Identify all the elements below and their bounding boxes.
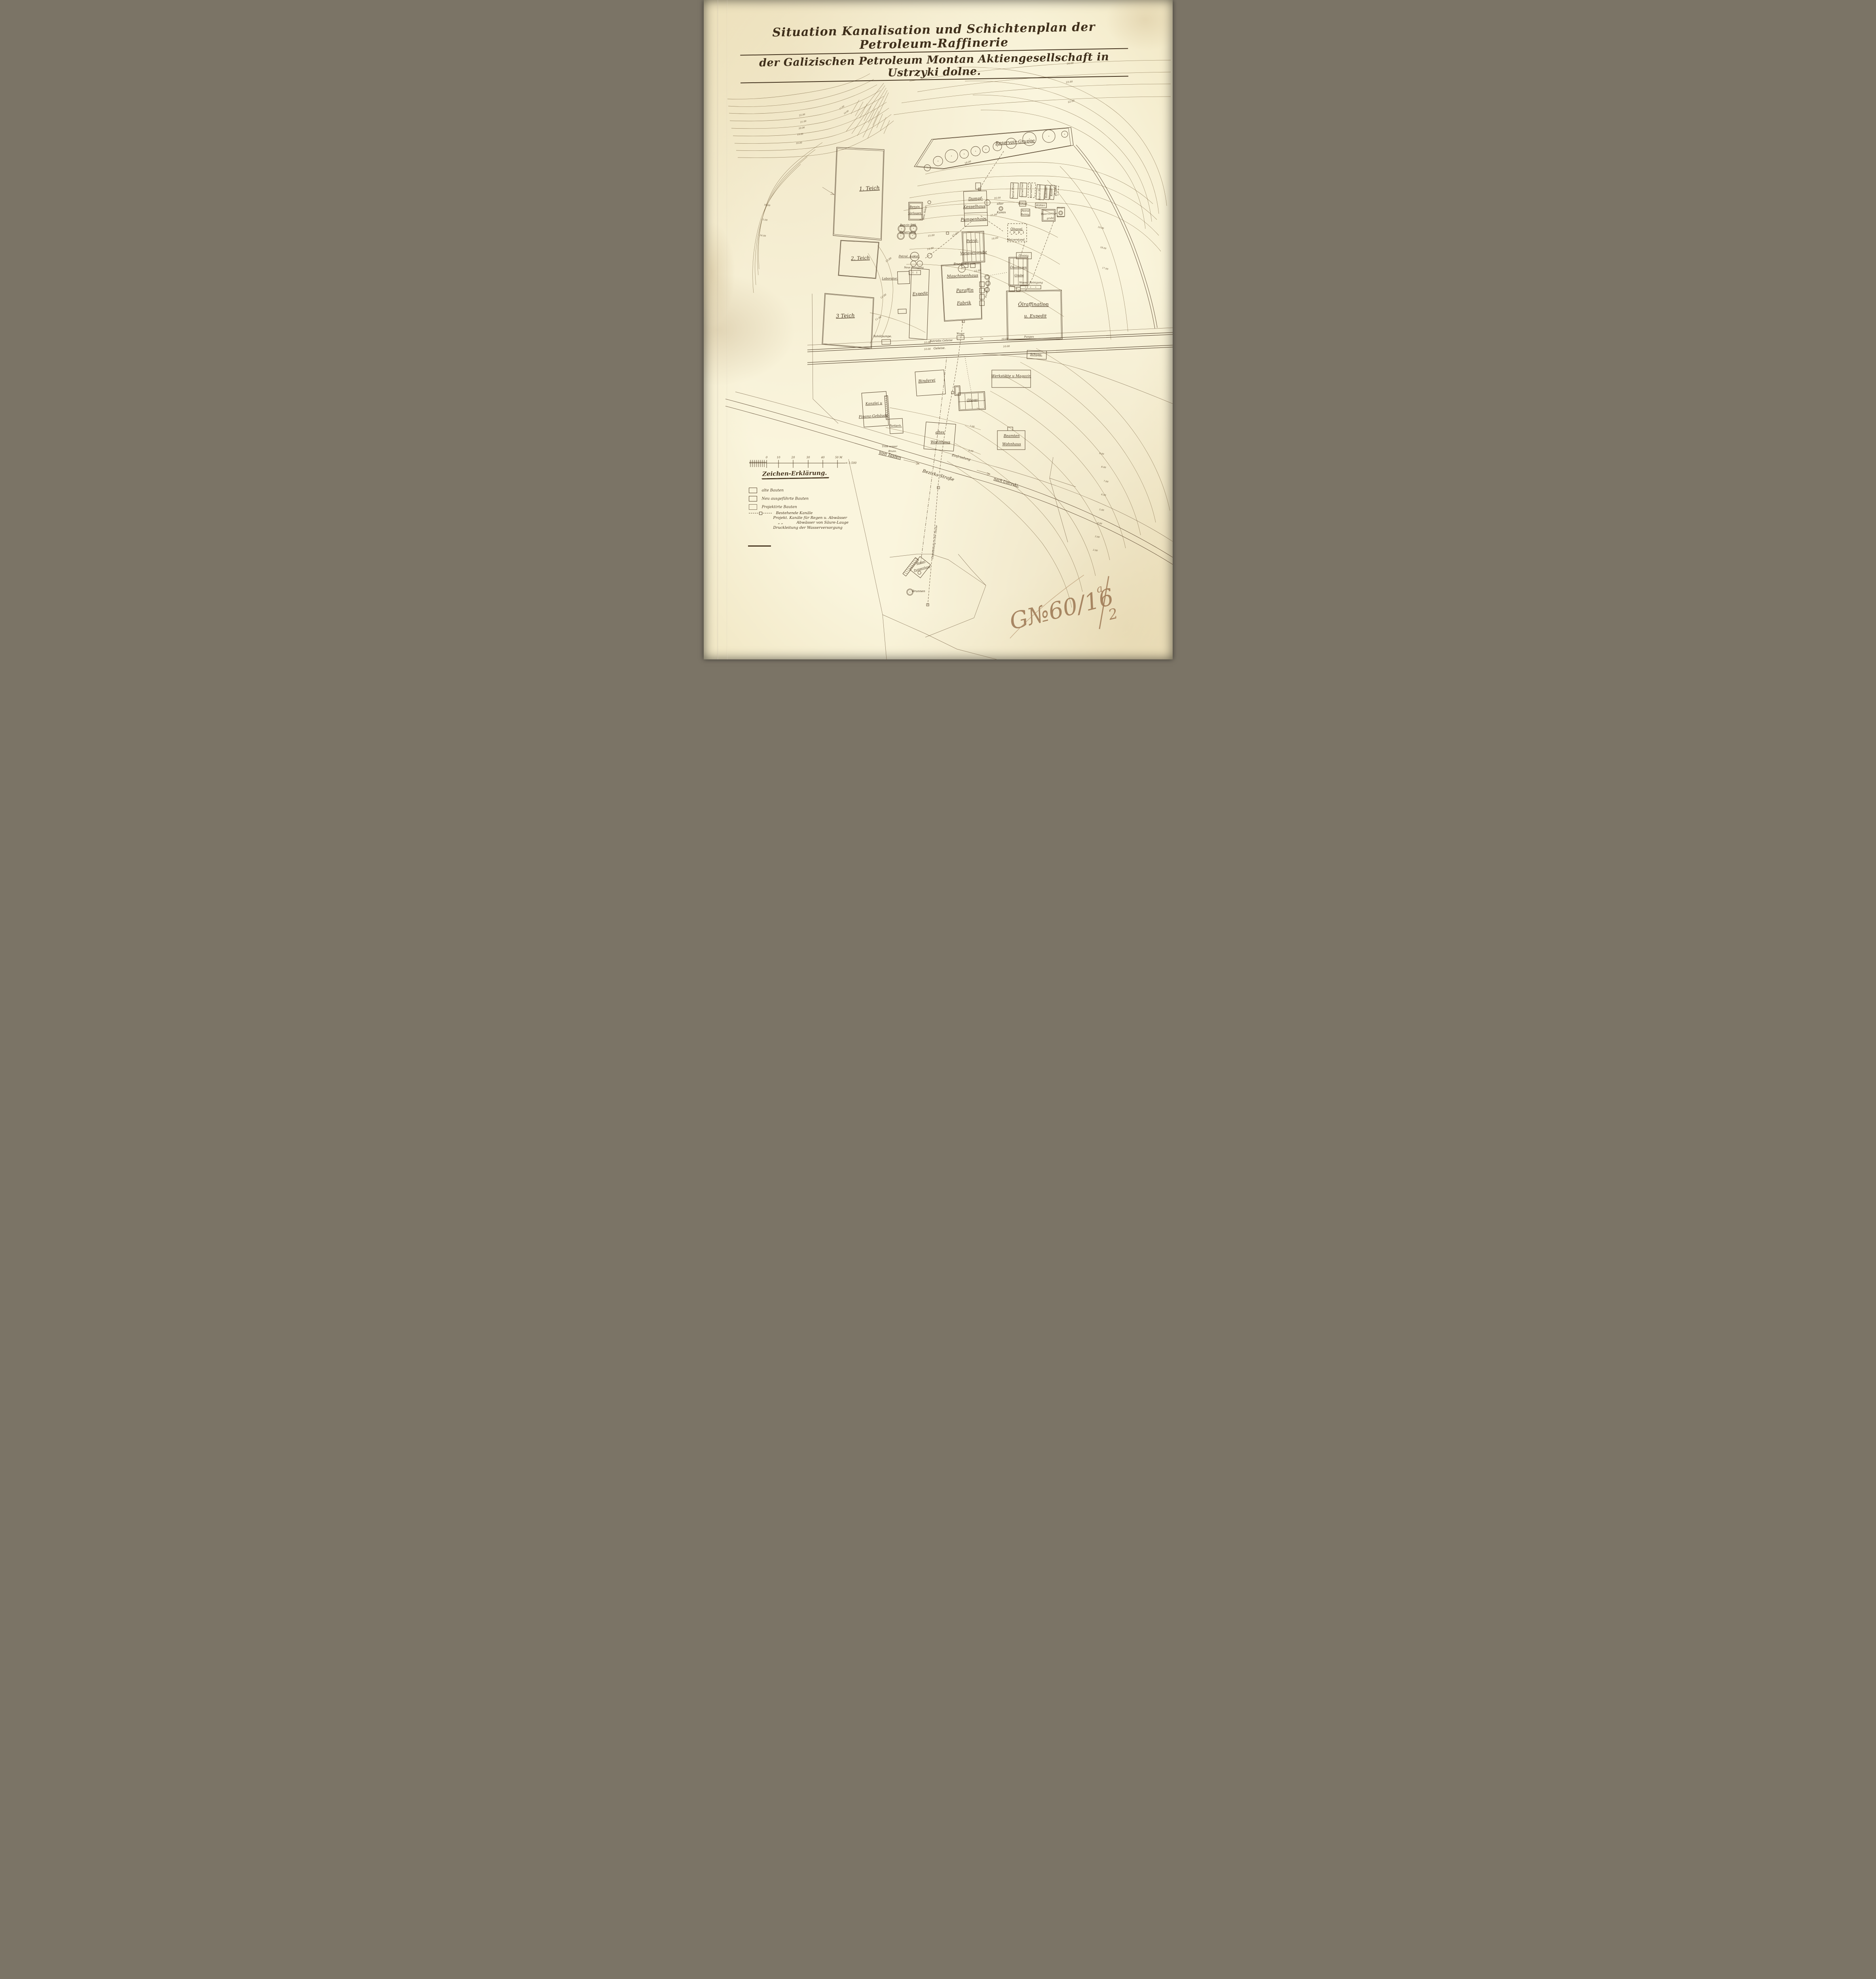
map-label: Portierh. — [889, 424, 902, 427]
elevation-label: 10.00 — [924, 341, 931, 344]
map-building — [898, 309, 906, 314]
map-building — [980, 294, 984, 299]
map-label: Schupa. — [1030, 352, 1042, 356]
elevation-label: 10.00 — [924, 348, 931, 351]
map-label: Vorwärmer — [1021, 182, 1024, 198]
map-tank — [927, 253, 932, 258]
elevation-label: 13.00 — [951, 232, 959, 237]
elevation-label: 18.00 — [796, 142, 802, 145]
map-building — [903, 557, 919, 576]
elevation-label: 30 — [806, 456, 810, 459]
map-label: Einfriedung — [951, 453, 971, 462]
map-label: Petrol. Agitat. — [898, 254, 919, 258]
map-label: Reinig. — [1020, 213, 1030, 216]
map-label: Pumpenhaus — [913, 565, 930, 572]
buildings-layer — [822, 127, 1073, 606]
elevation-label: 17.00 — [1101, 267, 1108, 271]
elevation-label: 19.00 — [1097, 226, 1104, 230]
map-tank — [928, 201, 931, 204]
canal-lines — [921, 151, 1054, 606]
map-building — [976, 183, 981, 189]
manhole-marker — [962, 320, 965, 323]
elevation-label: 4.00 — [1096, 522, 1102, 526]
map-label: Paraffin Reservoire — [985, 276, 991, 298]
map-tank — [1059, 211, 1063, 215]
map-tank — [999, 207, 1003, 211]
map-label: Pumpenhaus — [960, 217, 987, 222]
map-building — [980, 301, 984, 306]
legend-item-projected-buildings: Projektirte Bauten — [749, 504, 797, 510]
legend-line-sample — [748, 545, 771, 547]
elevation-label: 12.00 — [880, 293, 887, 300]
legend-item-rain-canals: Projekt. Kanäle für Regen u. Abwässer — [773, 516, 847, 520]
elevation-label: 7.00 — [1103, 480, 1109, 483]
elevation-label: 18.00 — [1099, 246, 1106, 250]
map-label: Kamin — [1057, 216, 1064, 218]
map-tank — [1020, 230, 1023, 234]
map-label: Theervorlage — [1041, 212, 1057, 216]
map-label: Ölreinig. — [1018, 254, 1029, 257]
elevation-label: 6.00 — [1101, 494, 1106, 497]
railway-and-roads — [725, 145, 1173, 659]
map-tank — [1061, 131, 1068, 137]
map-label: Bensin — [909, 205, 920, 209]
legend-item-label: alte Bauten — [762, 488, 784, 493]
map-tank — [971, 146, 980, 156]
elevation-label: 23.00 — [1065, 80, 1073, 84]
drawing-title: Situation Kanalisation und Schichtenplan… — [740, 21, 1128, 82]
elevation-label: 40 — [820, 456, 824, 459]
map-label: Canalleitung in die Teiche — [930, 525, 938, 559]
map-label: Beamten — [1003, 434, 1020, 438]
map-label: Dampf- — [968, 196, 983, 201]
map-label: Rohölpumpe. — [873, 335, 892, 338]
map-building — [954, 386, 960, 396]
elevation-label: 14.00 — [991, 237, 998, 241]
map-tank — [1042, 130, 1055, 142]
map-label: grube — [1046, 217, 1054, 220]
legend-item-pressure-pipe: Druckleitung der Wasserversorgung — [773, 526, 843, 530]
map-label: 2. Teich — [850, 255, 870, 261]
elevation-label: 21.00 — [799, 120, 807, 123]
map-label: Brunnen — [911, 589, 925, 593]
elevation-label: 8.00 — [1101, 466, 1106, 469]
legend-item-label: Abwässer von Säure-Lauge — [797, 520, 849, 525]
title-line2: der Galizischen Petroleum Montan Aktieng… — [740, 50, 1128, 83]
map-label: Reservoir-Gruppe — [995, 138, 1035, 146]
legend-ditto-marks: „ „ — [778, 520, 796, 525]
elevation-label: 22.00 — [1067, 99, 1075, 104]
map-tank — [933, 156, 943, 166]
map-label: Vorlagengrube — [960, 250, 987, 256]
map-label: Benzin Füll — [899, 224, 915, 227]
map-label: alter — [997, 202, 1003, 205]
manhole-marker — [946, 232, 949, 234]
map-label: Petrol- — [966, 239, 978, 243]
elevation-label: 11.00 — [875, 315, 882, 321]
elevation-label: 22.00 — [798, 113, 805, 117]
map-building — [881, 340, 890, 345]
map-tank — [911, 261, 916, 266]
map-label: Ölkessel. — [1010, 227, 1023, 231]
site-plan-drawing: 1. Teich2. Teich3 TeichReservoir-GruppeD… — [704, 0, 1173, 659]
map-structure — [833, 147, 884, 240]
map-label: altes — [935, 430, 944, 435]
elevation-label: 16.00 — [763, 204, 770, 207]
scale-bar — [749, 460, 845, 468]
map-label: Finanz-Gebäude — [858, 414, 888, 419]
map-label: Kühler — [1018, 202, 1027, 205]
legend-swatch-box — [749, 504, 757, 510]
elevation-label: 14.00 — [759, 234, 766, 237]
map-building — [962, 231, 985, 263]
map-label: Redestill. — [1045, 187, 1048, 199]
elevation-label: 15.00 — [990, 213, 997, 217]
legend-item-acid-canals: „ „ Abwässer von Säure-Lauge — [778, 520, 849, 525]
map-label: Petrol — [1021, 209, 1029, 213]
elevation-label: 15.00 — [927, 234, 934, 237]
elevation-label: 20.00 — [798, 127, 805, 130]
registry-stamp: G№60/16 a 2 — [999, 569, 1120, 651]
map-label: Wohnhaus — [1002, 443, 1021, 446]
map-label: Brunnen. — [953, 262, 967, 266]
elevation-label: 19.00 — [797, 133, 803, 136]
elevation-label: 9.00 — [1099, 452, 1104, 456]
map-tank — [1010, 230, 1014, 234]
stamp-denominator: 2 — [1106, 606, 1119, 624]
legend-item-label: Bestehende Kanäle — [776, 511, 813, 515]
legend-item-existing-canals: Bestehende Kanäle — [749, 511, 813, 515]
elevation-label: 7.00 — [969, 425, 974, 428]
map-label: Werkstätte u Magazin — [991, 374, 1031, 378]
elevation-label: 15.00 — [761, 218, 767, 222]
elevation-label: 20 — [791, 456, 795, 459]
plan-sheet: 1. Teich2. Teich3 TeichReservoir-GruppeD… — [704, 0, 1173, 659]
elevation-label: 3.00 — [1094, 536, 1100, 539]
map-building — [980, 288, 984, 293]
map-label: Petrol-Blase — [1012, 183, 1015, 199]
manhole-marker — [937, 486, 940, 489]
legend: Zeichen-Erklärung. alte Bauten Neu ausge… — [746, 469, 877, 478]
map-label: Neue Reinigung — [904, 266, 923, 269]
map-building — [1008, 427, 1013, 431]
map-label: Vorwärmer — [1029, 183, 1033, 198]
legend-swatch-box — [749, 488, 757, 493]
map-label: Ölraffination — [1018, 301, 1048, 307]
map-label: Expedit — [912, 291, 928, 296]
elevation-label: 16.00 — [994, 196, 1001, 199]
map-label: Reservoire — [899, 230, 916, 234]
map-label: Grube — [1014, 273, 1024, 277]
map-label: Kanzlei u — [865, 401, 882, 406]
map-label: Betriebs Geleise — [929, 338, 953, 343]
elevation-label: 10.00 — [1003, 345, 1010, 348]
map-structure — [924, 422, 956, 451]
map-label: Paraffin — [955, 287, 973, 293]
map-structure — [822, 293, 874, 349]
map-label: Maschinenhaus — [946, 273, 978, 279]
legend-item-label: Projekt. Kanäle für Regen u. Abwässer — [773, 516, 847, 520]
map-label: Kamin — [996, 211, 1006, 214]
map-label: Binderei — [917, 378, 935, 384]
map-building — [997, 431, 1025, 450]
legend-swatch-dashed-line — [749, 513, 772, 513]
map-building — [992, 370, 1031, 387]
map-label: Vorlagen — [908, 211, 921, 215]
map-label: Waage — [956, 332, 965, 335]
legend-swatch-box — [749, 496, 757, 501]
map-label: Trockner — [1055, 186, 1058, 196]
elevation-label: 13.00 — [885, 257, 892, 263]
legend-title: Zeichen-Erklärung. — [761, 469, 829, 479]
map-label: Bens. Rektif. — [922, 206, 927, 220]
elevation-label: 12.00 — [974, 269, 981, 273]
title-line1: Situation Kanalisation und Schichtenplan… — [740, 19, 1128, 55]
map-label: Wasser Reinigung — [1019, 281, 1042, 284]
map-label: Kühler. — [1036, 204, 1045, 207]
legend-item-label: Neu ausgeführte Bauten — [762, 497, 809, 501]
map-label: Heizerstand. — [1007, 238, 1025, 241]
map-label: Wasser — [916, 560, 926, 565]
map-label: Öllager — [966, 398, 978, 402]
map-label: 1. Teich — [859, 185, 879, 192]
map-tank — [917, 261, 923, 266]
map-structure — [909, 268, 929, 340]
legend-item-new-buildings: Neu ausgeführte Bauten — [749, 496, 809, 501]
elevation-label: 2.00 — [1092, 549, 1098, 553]
elevation-label: 10 — [777, 456, 780, 459]
map-label: Geleise. — [933, 346, 946, 350]
map-tank — [960, 150, 968, 158]
map-building — [1009, 287, 1015, 291]
map-label: Pumpen — [1023, 336, 1034, 338]
map-building — [909, 270, 921, 275]
map-label: Kessel — [1050, 188, 1053, 197]
map-label: Ölvorlagen — [1010, 266, 1027, 269]
map-tank — [982, 146, 989, 153]
map-label: u. Expedit — [1024, 313, 1046, 319]
elevation-label: 14.00 — [927, 247, 934, 251]
map-building — [980, 282, 984, 287]
map-label: Trink wasser — [882, 445, 898, 448]
map-label: Wohnhaus — [930, 440, 950, 444]
map-tank — [945, 150, 958, 162]
map-tank — [918, 571, 921, 574]
map-building — [897, 271, 910, 284]
map-label: Bezirks-Straße — [921, 468, 955, 482]
map-tank — [1015, 230, 1019, 234]
elevation-label: 6.00 — [968, 450, 973, 453]
map-label: Laborator. — [881, 277, 898, 280]
elevation-label: 50 M — [835, 456, 842, 459]
map-label: Neuer — [1057, 207, 1064, 209]
elevation-label: 10.00 — [1001, 338, 1008, 341]
legend-item-label: Druckleitung der Wasserversorgung — [773, 526, 843, 530]
elevation-label: = 1:500 — [845, 462, 856, 465]
elevation-label: 16.00 — [843, 110, 849, 115]
legend-item-label: Projektirte Bauten — [762, 505, 797, 509]
map-label: 3 Teich — [835, 313, 854, 319]
legend-item-old-buildings: alte Bauten — [749, 488, 784, 493]
map-label: Kesselhaus — [963, 204, 985, 209]
elevation-label: 0 — [765, 456, 767, 459]
map-label: Fabrik — [956, 300, 971, 306]
map-label: Petrol-Blase — [1038, 184, 1041, 201]
map-label: nach Ustrzyki. — [993, 477, 1019, 488]
elevation-label: 5.00 — [1099, 509, 1104, 512]
